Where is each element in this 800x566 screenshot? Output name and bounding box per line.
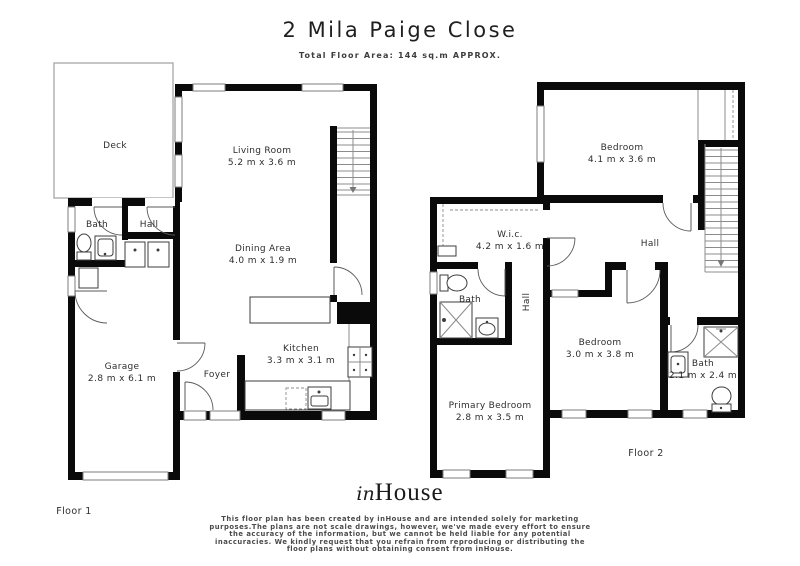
door-arc [478,269,505,296]
window [175,97,182,142]
room-label-wic: W.i.c. 4.2 m x 1.6 m [476,229,544,253]
window [537,106,544,162]
door-arc [334,267,362,295]
window [322,411,345,420]
floor2-closet [698,90,733,140]
floor1-label: Floor 1 [56,506,92,517]
room-label-foyer: Foyer [204,369,230,381]
room-label-bath-floor1: Bath [86,219,108,231]
room-label-garage: Garage 2.8 m x 6.1 m [88,361,156,385]
logo-house-text: House [375,479,444,506]
window [193,84,225,91]
kitchen-peninsula-counter [250,297,330,323]
floorplan-page: 2 Mila Paige Close Total Floor Area: 144… [0,0,800,566]
door-arc [177,343,205,371]
floor2-label: Floor 2 [628,448,664,459]
window [506,470,533,478]
room-label-dining-area: Dining Area 4.0 m x 1.9 m [229,243,297,267]
floor1-plan [54,63,377,480]
appliance-icon [79,268,98,288]
room-label-deck: Deck [103,140,127,152]
room-label-bedroom2: Bedroom 3.0 m x 3.8 m [566,337,634,361]
room-label-living-room: Living Room 5.2 m x 3.6 m [228,145,296,169]
disclaimer-text: This floor plan has been created by inHo… [209,516,590,554]
garage-door [83,472,168,480]
door-arc [185,382,213,410]
window [562,410,586,418]
sink-icon [95,236,116,260]
room-label-primary-bedroom: Primary Bedroom 2.8 m x 3.5 m [449,400,532,424]
window [443,470,470,478]
kitchen-sink-icon [308,387,331,409]
toilet-icon [712,387,731,412]
room-label-bath-floor2-right: Bath 2.1 m x 2.4 m [669,358,737,382]
laundry-appliance-icon [125,242,145,267]
window [175,155,182,187]
shower-icon [704,327,738,357]
toilet-icon [77,234,91,260]
disclaimer-line: floor plans without obtaining consent fr… [209,546,590,554]
stove-icon [348,347,372,377]
shower-icon [440,302,472,338]
inhouse-logo: inHouse [356,479,443,507]
room-label-kitchen: Kitchen 3.3 m x 3.1 m [267,343,335,367]
deck-outline [54,63,173,198]
room-label-hall-floor1: Hall [140,219,158,231]
window [628,410,652,418]
floor1-staircase [337,128,370,195]
room-label-hall-vertical: Hall [522,293,532,311]
logo-in-text: in [356,483,374,505]
wardrobe [552,290,578,297]
door-arc [663,203,691,231]
page-subtitle: Total Floor Area: 144 sq.m APPROX. [299,51,501,60]
window [430,272,437,294]
stairs-down-arrow-icon [718,260,725,267]
room-label-bedroom1: Bedroom 4.1 m x 3.6 m [588,142,656,166]
door-arc [671,325,698,352]
window [68,276,75,296]
floor2-staircase [705,144,738,272]
room-label-hall-floor2: Hall [641,238,659,250]
shelf [438,246,456,256]
door-arc [75,291,107,323]
kitchen-counter [245,381,350,410]
page-title: 2 Mila Paige Close [283,18,518,42]
laundry-appliance-icon [148,242,169,267]
window [210,411,240,420]
door-arc [627,270,660,303]
room-label-bath-floor2-left: Bath [459,294,481,306]
window [683,410,707,418]
door-arc [547,238,575,266]
window [68,207,75,232]
sink-icon [476,318,498,338]
toilet-icon [440,275,467,291]
entry-door-sill [184,411,206,420]
window [302,84,343,91]
